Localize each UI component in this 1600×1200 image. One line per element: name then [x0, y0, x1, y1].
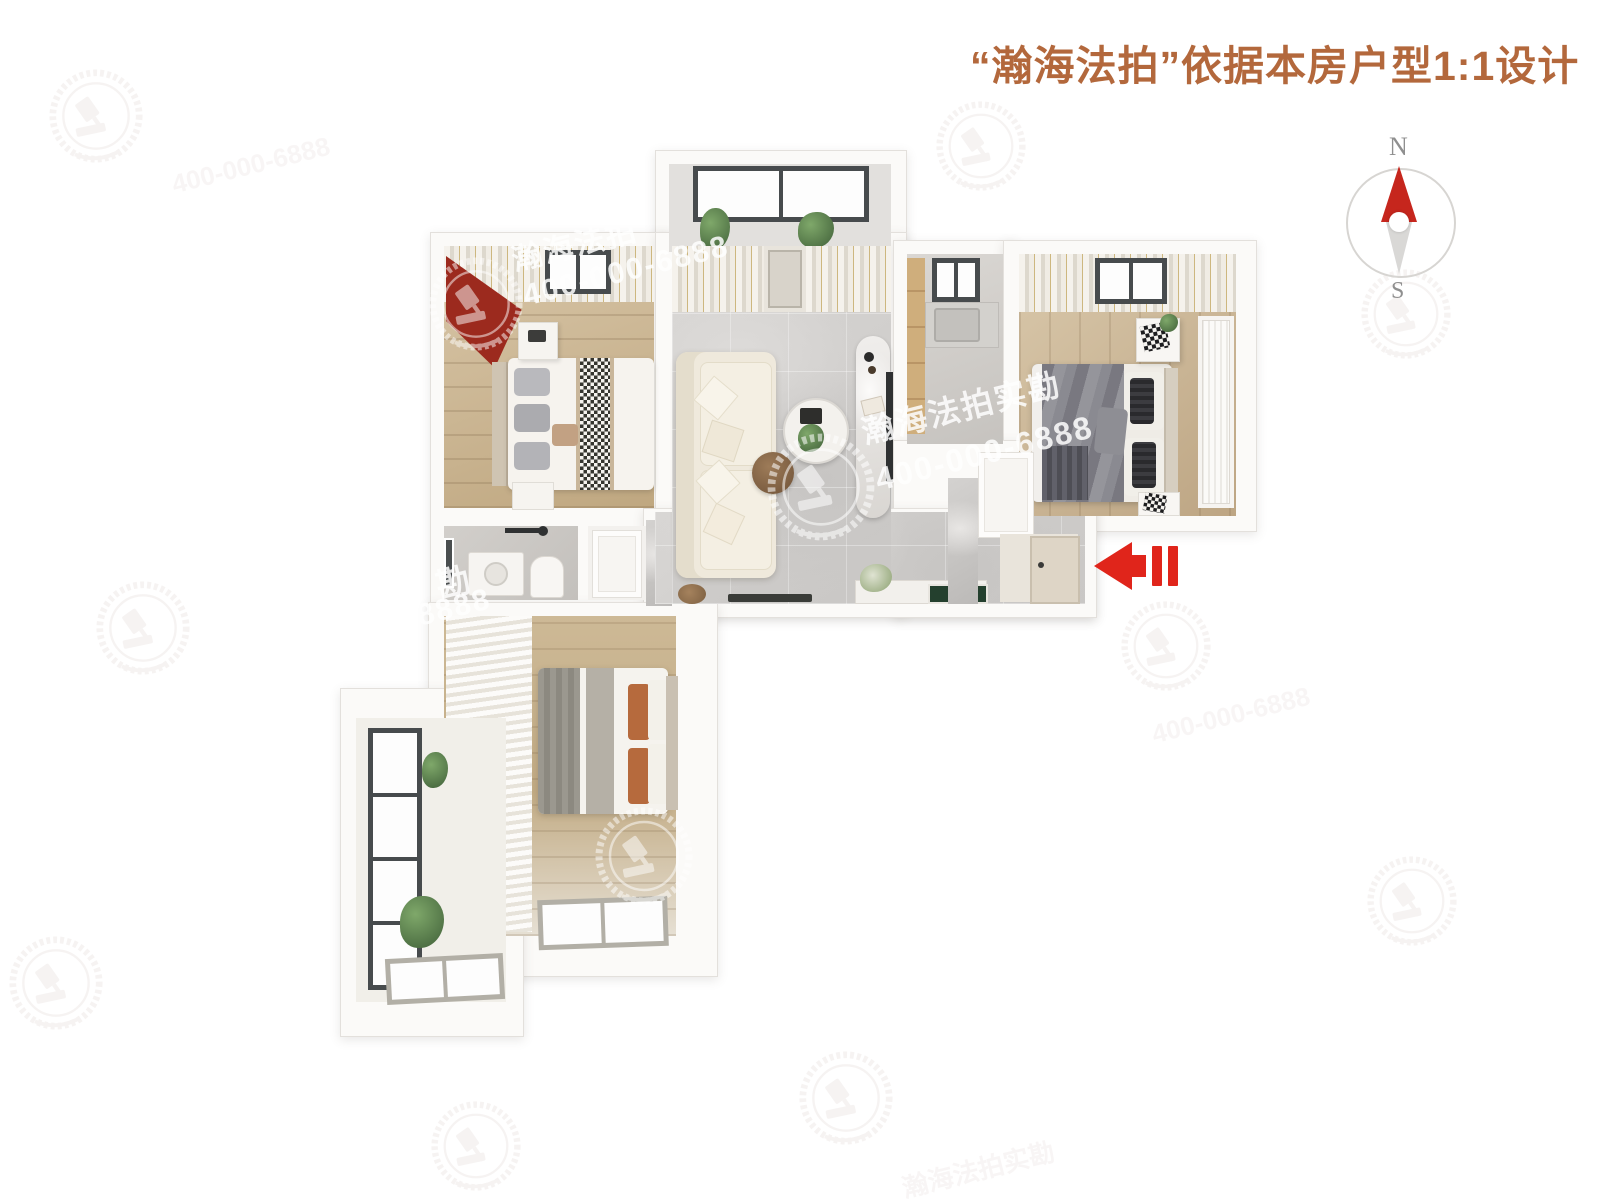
- console-decor: [864, 352, 874, 362]
- gavel-wreath-logo-icon: [430, 1100, 522, 1192]
- compass-hub: [1389, 212, 1409, 232]
- console-decor: [868, 366, 876, 374]
- bed-pillow: [552, 424, 578, 446]
- window-pane: [604, 901, 663, 943]
- entrance-door: [1030, 536, 1080, 604]
- knit-pillow: [1130, 378, 1154, 424]
- compass-south-label: S: [1391, 278, 1404, 305]
- bed-runner: [576, 358, 614, 490]
- bed-pillow: [628, 684, 650, 740]
- rattan-side-table: [678, 584, 706, 604]
- window-pane: [937, 263, 954, 297]
- bed-pillow: [648, 680, 668, 740]
- gavel-wreath-logo-icon: [798, 1050, 894, 1146]
- bed-pillow: [514, 442, 550, 470]
- bg-watermark-text: 瀚海法拍实勘: [898, 1132, 1058, 1200]
- bed-pillow: [648, 744, 668, 804]
- gavel-wreath-logo-icon: [1120, 600, 1212, 692]
- bedroom-s-headboard: [666, 676, 678, 810]
- gavel-wreath-logo-icon: [48, 68, 144, 164]
- balcony-door: [764, 246, 806, 312]
- vanity-basin: [484, 562, 508, 586]
- page-title: “瀚海法拍”依据本房户型1:1设计: [970, 32, 1579, 92]
- arrow-head: [1094, 542, 1132, 590]
- compass-icon: N S: [1336, 132, 1464, 312]
- nightstand-art: [1143, 492, 1168, 514]
- gavel-wreath-logo-icon: [935, 100, 1027, 192]
- bg-watermark-text: 400-000-6888: [169, 131, 334, 200]
- window-pane: [1100, 263, 1129, 299]
- knit-pillow: [1132, 442, 1156, 488]
- gavel-wreath-logo-icon: [8, 935, 104, 1031]
- window-pane: [783, 171, 864, 217]
- kitchen-window: [932, 258, 980, 302]
- window-pane: [390, 961, 444, 1000]
- window-pane: [1133, 263, 1162, 299]
- bedroom-ne-window: [1095, 258, 1167, 304]
- living-curtain-right: [806, 246, 891, 312]
- entry-marble-pillar: [948, 478, 978, 604]
- gavel-wreath-logo-icon: [594, 806, 694, 906]
- foot-blanket: [538, 668, 580, 814]
- gavel-wreath-logo-icon: [1366, 855, 1458, 947]
- window-pane: [446, 958, 500, 997]
- window-pane: [542, 903, 601, 945]
- kitchen-sink: [934, 308, 980, 342]
- arrow-bar: [1152, 546, 1162, 586]
- lumbar-pillow: [1094, 407, 1129, 456]
- balcony-window-left: [368, 728, 422, 990]
- arrow-bar: [1168, 546, 1178, 586]
- doormat: [728, 594, 812, 602]
- hall-cabinet: [592, 530, 642, 598]
- wardrobe-paneled-wall: [1198, 316, 1234, 508]
- gavel-wreath-logo-icon: [766, 432, 876, 542]
- bedroom-nw-headboard: [492, 362, 508, 486]
- window-pane: [373, 733, 417, 793]
- bed-pillow: [514, 368, 550, 396]
- balcony-window-bottom: [385, 953, 505, 1005]
- window-pane: [373, 797, 417, 857]
- gavel-wreath-logo-icon: [428, 256, 524, 352]
- nightstand: [512, 482, 554, 510]
- compass-north-label: N: [1389, 132, 1408, 162]
- bed-pillow: [514, 404, 550, 432]
- nightstand-decor: [528, 330, 546, 342]
- arrow-shaft: [1132, 555, 1146, 577]
- entrance-arrow-icon: [1094, 542, 1178, 590]
- bed-runner: [586, 668, 614, 814]
- window-pane: [958, 263, 975, 297]
- gavel-wreath-logo-icon: [95, 580, 191, 676]
- bedroom-ne-headboard: [1164, 368, 1178, 500]
- toilet: [530, 556, 564, 598]
- floorplan-render: 400-000-6888 400-000-6888 瀚海法拍实勘: [0, 0, 1600, 1200]
- bed-pillow: [628, 748, 650, 804]
- door-handle: [1038, 562, 1044, 568]
- coffee-table-decor: [800, 408, 822, 424]
- shower-head: [538, 526, 548, 536]
